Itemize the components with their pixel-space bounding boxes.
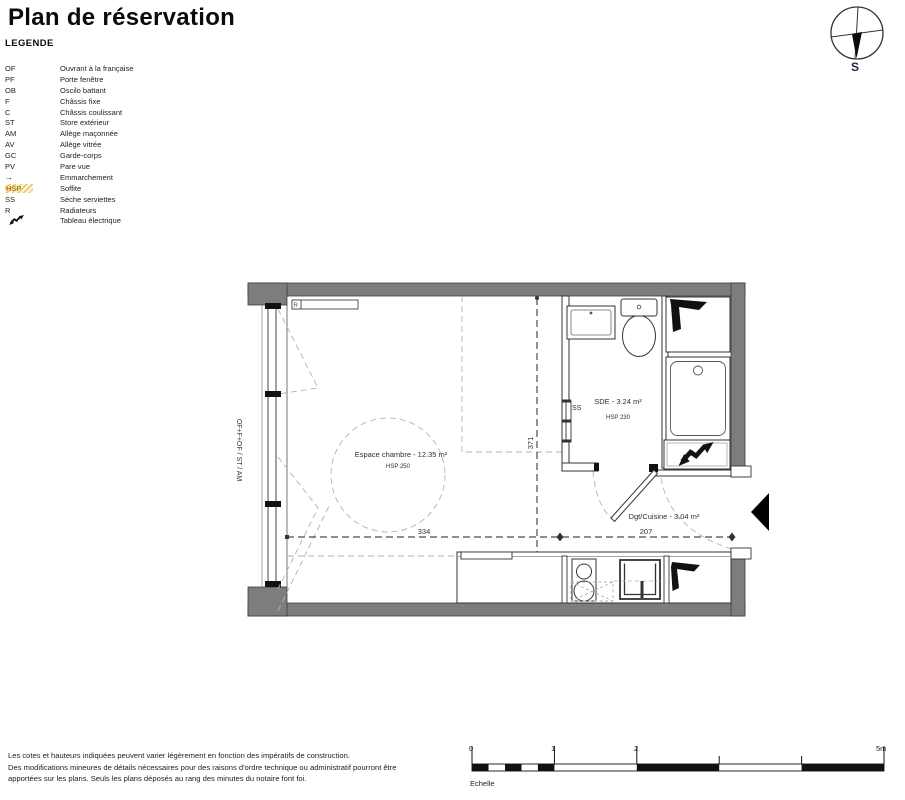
legend-row: FChâssis fixe: [5, 96, 235, 107]
room-hsp-sde: HSP 230: [606, 415, 631, 421]
sink: [567, 306, 615, 339]
closet: [666, 297, 730, 352]
compass: S: [820, 0, 900, 80]
scale-bar: 0 1 2 5m Echelle: [455, 735, 895, 795]
floor-plan: OF+F+OF / ST / AM R: [220, 270, 785, 630]
scale-segments: [472, 764, 884, 771]
legend-abbr: SS: [5, 195, 60, 204]
legend-desc: Tableau électrique: [60, 216, 235, 225]
turning-circle: [331, 418, 445, 532]
sde-door-swing-arc: [593, 471, 611, 518]
legend-row: OBOscilo battant: [5, 85, 235, 96]
legend-desc: Soffite: [60, 184, 235, 193]
legend-desc: Garde-corps: [60, 151, 235, 160]
legend-abbr: C: [5, 108, 60, 117]
legend-row: HSPSoffite: [5, 183, 235, 194]
legend-abbr: GC: [5, 151, 60, 160]
page: { "title": "Plan de réservation", "legen…: [0, 0, 905, 800]
disclaimer: Les cotes et hauteurs indiquées peuvent …: [8, 750, 438, 785]
wall-bottom: [248, 603, 745, 616]
scale-tick-0: 0: [469, 744, 473, 753]
radiator-label: R: [294, 303, 299, 309]
ss-label: SS: [572, 405, 582, 412]
legend-heading: LEGENDE: [5, 38, 235, 49]
hatch-swatch: HSP: [5, 184, 33, 193]
disclaimer-line: Des modifications mineures de détails né…: [8, 762, 438, 774]
legend-row: AMAllège maçonnée: [5, 128, 235, 139]
legend-desc: Store extérieur: [60, 118, 235, 127]
legend-row: GCGarde-corps: [5, 150, 235, 161]
legend-abbr: AV: [5, 140, 60, 149]
entrance: [731, 466, 769, 559]
room-label-sde: SDE - 3.24 m²: [594, 397, 642, 406]
arrow-right-icon: →: [5, 173, 60, 182]
legend-abbr: OF: [5, 64, 60, 73]
scale-tick-1: 1: [551, 744, 555, 753]
scale-tick-5m: 5m: [876, 744, 886, 753]
wall-top: [248, 283, 745, 296]
legend-abbr: HSP: [6, 184, 21, 193]
legend-abbr: F: [5, 97, 60, 106]
legend-row: PVPare vue: [5, 161, 235, 172]
disclaimer-line: apportées sur les plans. Seuls les plans…: [8, 773, 438, 785]
legend-row: SSSèche serviettes: [5, 194, 235, 205]
legend-row: →Emmarchement: [5, 172, 235, 183]
legend-desc: Châssis fixe: [60, 97, 235, 106]
kitchen-counter: [457, 552, 731, 603]
legend-abbr: R: [5, 206, 60, 215]
legend-desc: Sèche serviettes: [60, 195, 235, 204]
dim-207: 207: [640, 527, 653, 536]
lightning-icon: [5, 215, 29, 225]
legend-abbr: ST: [5, 118, 60, 127]
compass-rose-icon: [831, 7, 883, 59]
legend-abbr: OB: [5, 86, 60, 95]
legend-abbr: AM: [5, 129, 60, 138]
room-label-cuisine: Dgt/Cuisine - 3.04 m²: [629, 512, 700, 521]
toilet: [621, 299, 657, 357]
legend-desc: Emmarchement: [60, 173, 235, 182]
legend-abbr: PV: [5, 162, 60, 171]
window-mullion: [265, 391, 281, 397]
wall-left-top-corner: [248, 283, 287, 305]
legend-abbr: PF: [5, 75, 60, 84]
dim-371: 371: [526, 437, 535, 450]
legend-desc: Pare vue: [60, 162, 235, 171]
page-title: Plan de réservation: [8, 4, 235, 32]
legend-desc: Allège vitrée: [60, 140, 235, 149]
scale-tick-2: 2: [634, 744, 638, 753]
legend-row: OFOuvrant à la française: [5, 63, 235, 74]
threshold-cap: [731, 466, 751, 477]
threshold-cap: [731, 548, 751, 559]
cooktop-unit: [614, 560, 666, 599]
legend-row: PFPorte fenêtre: [5, 74, 235, 85]
dim-334: 334: [418, 527, 431, 536]
legend-row: CChâssis coulissant: [5, 107, 235, 118]
legend-desc: Oscilo battant: [60, 86, 235, 95]
wall-end-cap: [594, 463, 599, 471]
legend-desc: Allège maçonnée: [60, 129, 235, 138]
legend-desc: Radiateurs: [60, 206, 235, 215]
legend: LEGENDE OFOuvrant à la française PFPorte…: [5, 38, 235, 226]
legend-row: Tableau électrique: [5, 215, 235, 226]
legend-row: AVAllège vitrée: [5, 139, 235, 150]
scale-ticks: [472, 746, 884, 764]
shower: [666, 357, 730, 440]
entrance-arrow-icon: [751, 493, 769, 531]
window-mullion: [265, 581, 281, 587]
window-mullion: [265, 303, 281, 309]
legend-desc: Ouvrant à la française: [60, 64, 235, 73]
compass-south-label: S: [851, 60, 859, 74]
legend-desc: Châssis coulissant: [60, 108, 235, 117]
disclaimer-line: Les cotes et hauteurs indiquées peuvent …: [8, 750, 438, 762]
legend-row: RRadiateurs: [5, 205, 235, 216]
electrical-panel: [664, 440, 730, 469]
counter-shelf: [461, 552, 512, 559]
window-mullion: [265, 501, 281, 507]
scale-label: Echelle: [470, 779, 495, 788]
room-hsp-chambre: HSP 250: [386, 464, 411, 470]
kitchen-sink-unit: [572, 559, 596, 601]
window-label: OF+F+OF / ST / AM: [235, 419, 242, 482]
wall-left-bottom-corner: [248, 587, 287, 616]
wall-right-upper: [731, 283, 745, 477]
window-band: [262, 303, 287, 587]
legend-row: STStore extérieur: [5, 117, 235, 128]
radiator: R: [292, 300, 358, 309]
legend-desc: Porte fenêtre: [60, 75, 235, 84]
room-label-chambre: Espace chambre - 12.35 m²: [355, 450, 448, 459]
